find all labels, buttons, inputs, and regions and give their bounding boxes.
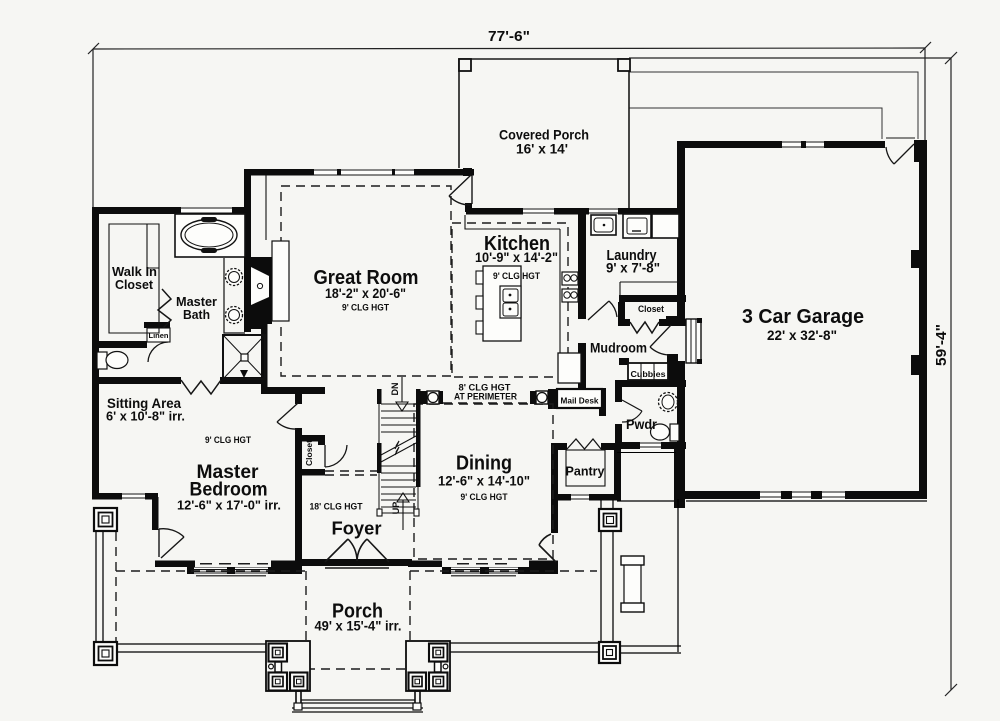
svg-text:Dining: Dining xyxy=(456,453,512,475)
svg-text:9' CLG HGT: 9' CLG HGT xyxy=(205,435,251,446)
svg-text:Mail Desk: Mail Desk xyxy=(561,396,599,406)
svg-text:9' x 7'-8": 9' x 7'-8" xyxy=(606,260,660,276)
svg-text:12'-6" x 17'-0" irr.: 12'-6" x 17'-0" irr. xyxy=(177,498,281,513)
svg-text:3 Car Garage: 3 Car Garage xyxy=(742,306,864,328)
svg-text:59'-4": 59'-4" xyxy=(933,324,950,366)
svg-text:Master: Master xyxy=(176,295,217,309)
svg-text:Bath: Bath xyxy=(183,308,210,322)
svg-text:22' x 32'-8": 22' x 32'-8" xyxy=(767,327,837,343)
svg-text:9' CLG HGT: 9' CLG HGT xyxy=(493,271,540,282)
svg-text:9' CLG HGT: 9' CLG HGT xyxy=(461,492,508,503)
svg-text:6' x 10'-8" irr.: 6' x 10'-8" irr. xyxy=(106,409,185,424)
svg-text:Covered Porch: Covered Porch xyxy=(499,127,589,143)
svg-text:Pwdr: Pwdr xyxy=(626,417,658,432)
svg-text:10'-9" x 14'-2": 10'-9" x 14'-2" xyxy=(475,250,558,265)
svg-text:Mudroom: Mudroom xyxy=(590,341,647,356)
svg-text:16' x 14': 16' x 14' xyxy=(516,142,568,157)
svg-text:18' CLG HGT: 18' CLG HGT xyxy=(310,502,363,513)
svg-text:AT PERIMETER: AT PERIMETER xyxy=(454,392,517,403)
svg-text:12'-6" x 14'-10": 12'-6" x 14'-10" xyxy=(438,474,530,489)
svg-text:DN: DN xyxy=(390,383,400,396)
svg-text:77'-6": 77'-6" xyxy=(488,28,530,45)
svg-text:Cubbies: Cubbies xyxy=(631,369,666,379)
svg-text:Foyer: Foyer xyxy=(332,519,382,539)
svg-text:Closet: Closet xyxy=(115,277,154,292)
svg-text:49' x 15'-4" irr.: 49' x 15'-4" irr. xyxy=(315,619,402,634)
svg-text:Closet: Closet xyxy=(638,304,665,315)
svg-text:UP: UP xyxy=(391,502,401,515)
svg-text:Linen: Linen xyxy=(149,333,169,340)
svg-text:18'-2" x 20'-6": 18'-2" x 20'-6" xyxy=(325,286,406,301)
svg-text:Pantry: Pantry xyxy=(566,464,606,479)
svg-text:Closet: Closet xyxy=(304,440,314,466)
svg-text:9' CLG HGT: 9' CLG HGT xyxy=(342,303,389,314)
